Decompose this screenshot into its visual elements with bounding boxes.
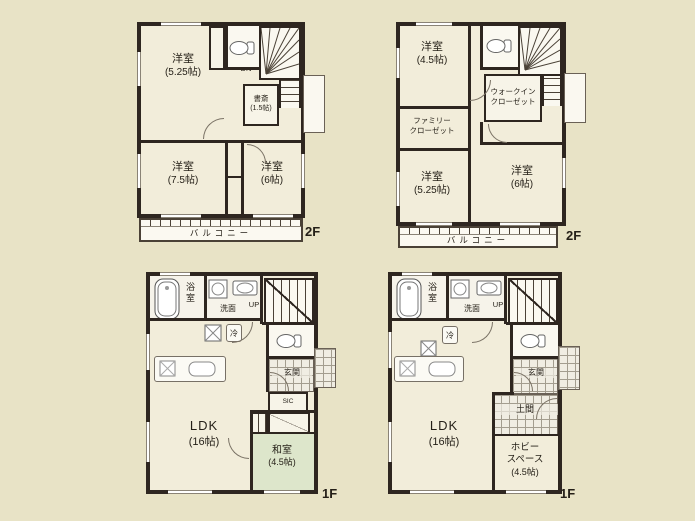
closet bbox=[268, 412, 310, 434]
stair-treads-down bbox=[279, 80, 301, 108]
wall bbox=[504, 276, 507, 324]
window bbox=[137, 52, 141, 86]
wash-label: 洗面 bbox=[208, 304, 248, 314]
wall bbox=[392, 318, 506, 321]
winder-stairs bbox=[259, 26, 301, 80]
stove-icon bbox=[204, 324, 222, 342]
window bbox=[168, 490, 212, 494]
window bbox=[301, 154, 305, 188]
window bbox=[416, 222, 452, 226]
room-label: 洋室 bbox=[245, 160, 299, 174]
stair-fan-lines bbox=[261, 28, 299, 78]
stair-fan-lines bbox=[520, 28, 560, 74]
cooktop-icon bbox=[159, 360, 176, 377]
window bbox=[146, 334, 150, 370]
room-label: 和室 bbox=[252, 444, 312, 457]
wall bbox=[510, 356, 558, 359]
washing-machine-icon bbox=[208, 279, 228, 299]
toilet-icon bbox=[520, 333, 546, 349]
wic-label-line1: ウォークイン bbox=[486, 87, 540, 97]
floor-label: 1F bbox=[560, 486, 575, 501]
study-label: 書斎 bbox=[245, 94, 277, 104]
room-size: (5.25帖) bbox=[400, 184, 464, 197]
wall bbox=[492, 394, 495, 490]
cooktop-icon bbox=[399, 360, 416, 377]
staircase-up bbox=[264, 278, 314, 324]
window bbox=[388, 422, 392, 462]
wall bbox=[468, 26, 471, 222]
kitchen-sink-icon bbox=[188, 361, 216, 377]
wall bbox=[400, 148, 468, 151]
family-closet-label-line2: クローゼット bbox=[400, 126, 464, 136]
window bbox=[264, 490, 300, 494]
wall bbox=[400, 106, 468, 109]
family-closet-label-line1: ファミリー bbox=[400, 116, 464, 126]
shoe-in-closet: SIC bbox=[268, 392, 308, 412]
room-label: LDK bbox=[158, 418, 250, 435]
window bbox=[161, 22, 201, 26]
refrigerator-icon: 冷 bbox=[442, 326, 458, 344]
wall bbox=[225, 26, 228, 70]
wall bbox=[250, 432, 314, 434]
window bbox=[500, 222, 540, 226]
room-size: (7.5帖) bbox=[145, 174, 221, 187]
window bbox=[137, 154, 141, 188]
floor-plan-sheet: バルコニー DN 書斎 (1.5帖) bbox=[0, 0, 695, 521]
room-size: (5.25帖) bbox=[145, 66, 221, 79]
wall bbox=[141, 140, 301, 143]
toilet-icon bbox=[276, 333, 302, 349]
wall bbox=[446, 276, 449, 320]
wall bbox=[225, 67, 259, 70]
window bbox=[506, 490, 546, 494]
bathtub-icon bbox=[154, 278, 180, 320]
wall bbox=[492, 392, 514, 395]
wall bbox=[204, 276, 207, 320]
wic-label-line2: クローゼット bbox=[486, 97, 540, 107]
balcony-railing-hatch bbox=[141, 220, 301, 227]
wall bbox=[266, 356, 314, 359]
floor-label: 1F bbox=[322, 486, 337, 501]
kitchen-sink-icon bbox=[428, 361, 456, 377]
wall bbox=[510, 324, 513, 394]
wall bbox=[480, 142, 562, 145]
washing-machine-icon bbox=[450, 279, 470, 299]
bay-window bbox=[564, 73, 586, 123]
window bbox=[253, 214, 293, 218]
wall bbox=[250, 410, 314, 413]
floor-label: 2F bbox=[566, 228, 581, 243]
wall bbox=[492, 434, 558, 436]
room-size: (6帖) bbox=[492, 178, 552, 191]
room-label: 洋室 bbox=[145, 52, 221, 66]
balcony-label: バルコニー bbox=[400, 234, 556, 246]
entrance-porch bbox=[558, 346, 580, 390]
room-label: 洋室 bbox=[400, 170, 464, 184]
room-label: 洋室 bbox=[400, 40, 464, 54]
window bbox=[146, 422, 150, 462]
entrance-porch bbox=[314, 348, 336, 388]
fridge-label: 冷 bbox=[446, 330, 454, 341]
wall bbox=[260, 276, 263, 324]
stair-treads-down bbox=[542, 76, 562, 106]
bay-window bbox=[303, 75, 325, 133]
room-size: (4.5帖) bbox=[400, 54, 464, 67]
vanity-sink-icon bbox=[232, 280, 258, 296]
toilet-icon bbox=[486, 38, 512, 54]
sic-label: SIC bbox=[270, 398, 306, 406]
vanity-sink-icon bbox=[476, 280, 502, 296]
floorplan-2f-unit-b: バルコニー DN ウォークイン クローゼット bbox=[396, 22, 590, 248]
floorplan-1f-unit-a: 浴室 洗面 UP 玄関 SIC 和室 (4.5帖) bbox=[146, 272, 344, 508]
study-size: (1.5帖) bbox=[245, 104, 277, 113]
room-size: (4.5帖) bbox=[252, 457, 312, 469]
wall bbox=[250, 412, 253, 490]
winder-stairs bbox=[518, 26, 562, 76]
staircase-up bbox=[508, 278, 558, 324]
bath-label: 浴室 bbox=[426, 282, 439, 304]
room-label: 洋室 bbox=[492, 164, 552, 178]
balcony-label: バルコニー bbox=[141, 227, 301, 239]
hobby-label-line2: スペース bbox=[492, 454, 558, 466]
room-label: 洋室 bbox=[145, 160, 221, 174]
floorplan-2f-unit-a: バルコニー DN 書斎 (1.5帖) bbox=[137, 22, 329, 248]
floorplan-1f-unit-b: 浴室 洗面 UP 玄関 土間 ホビー スペース (4.5帖) 冷 bbox=[388, 272, 586, 508]
window bbox=[562, 158, 566, 188]
window bbox=[402, 272, 432, 276]
wall bbox=[506, 322, 558, 325]
bath-label: 浴室 bbox=[184, 282, 197, 304]
wall bbox=[262, 322, 314, 325]
wall bbox=[480, 26, 483, 70]
floor-label: 2F bbox=[305, 224, 320, 239]
window bbox=[416, 22, 452, 26]
room-size: (16帖) bbox=[158, 435, 250, 449]
hobby-size: (4.5帖) bbox=[492, 467, 558, 479]
walk-in-closet: ウォークイン クローゼット bbox=[484, 74, 542, 122]
wash-label: 洗面 bbox=[452, 304, 492, 314]
wall bbox=[225, 176, 243, 178]
room-size: (6帖) bbox=[245, 174, 299, 187]
balcony: バルコニー bbox=[139, 218, 303, 242]
window bbox=[161, 214, 201, 218]
toilet-icon bbox=[229, 40, 255, 56]
window bbox=[388, 332, 392, 368]
study-room: 書斎 (1.5帖) bbox=[243, 84, 279, 126]
wall bbox=[480, 67, 518, 70]
wall bbox=[480, 122, 483, 145]
bathtub-icon bbox=[396, 278, 422, 320]
stove-icon bbox=[420, 340, 437, 357]
room-label: LDK bbox=[398, 418, 490, 435]
hobby-label-line1: ホビー bbox=[492, 442, 558, 454]
window bbox=[410, 490, 454, 494]
window bbox=[160, 272, 190, 276]
room-size: (16帖) bbox=[398, 435, 490, 449]
balcony: バルコニー bbox=[398, 226, 558, 248]
